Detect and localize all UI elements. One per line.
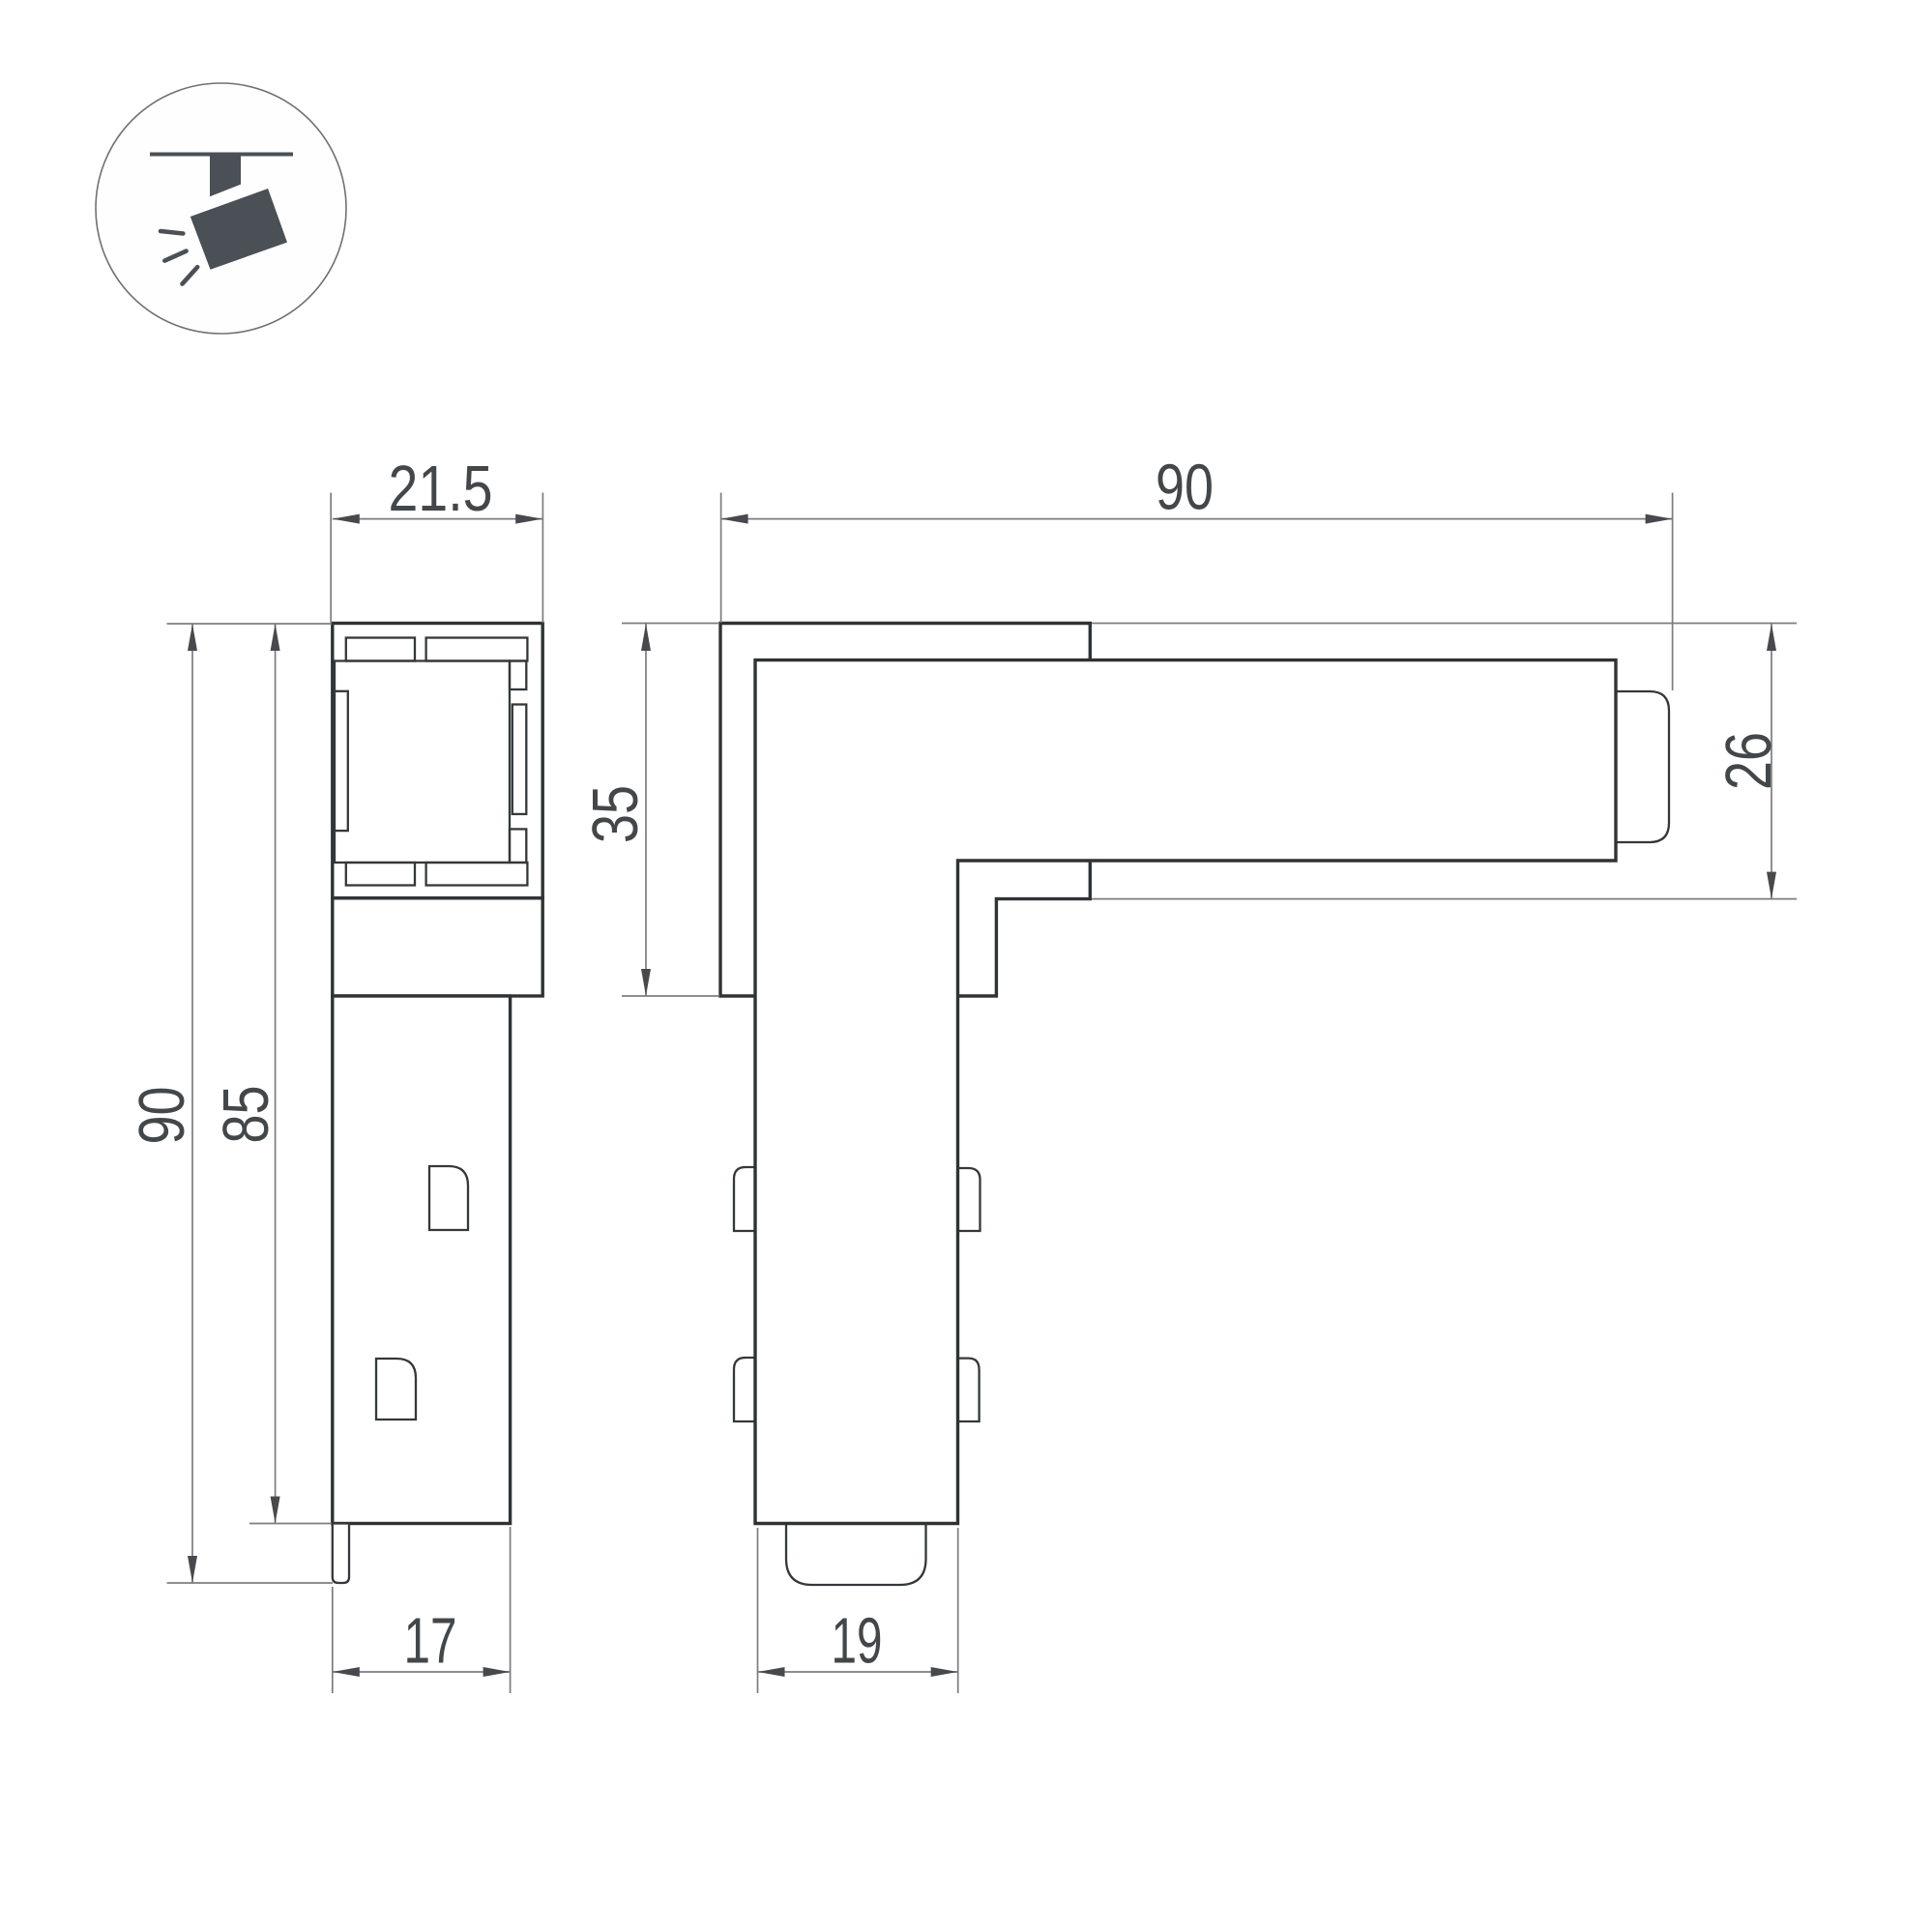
svg-text:90: 90 — [126, 1087, 198, 1145]
svg-text:85: 85 — [210, 1086, 282, 1144]
svg-text:26: 26 — [1712, 732, 1785, 790]
svg-text:35: 35 — [579, 785, 652, 843]
svg-text:90: 90 — [1156, 452, 1214, 524]
svg-text:17: 17 — [404, 1605, 457, 1678]
svg-text:21.5: 21.5 — [389, 453, 493, 525]
svg-text:19: 19 — [832, 1605, 883, 1678]
